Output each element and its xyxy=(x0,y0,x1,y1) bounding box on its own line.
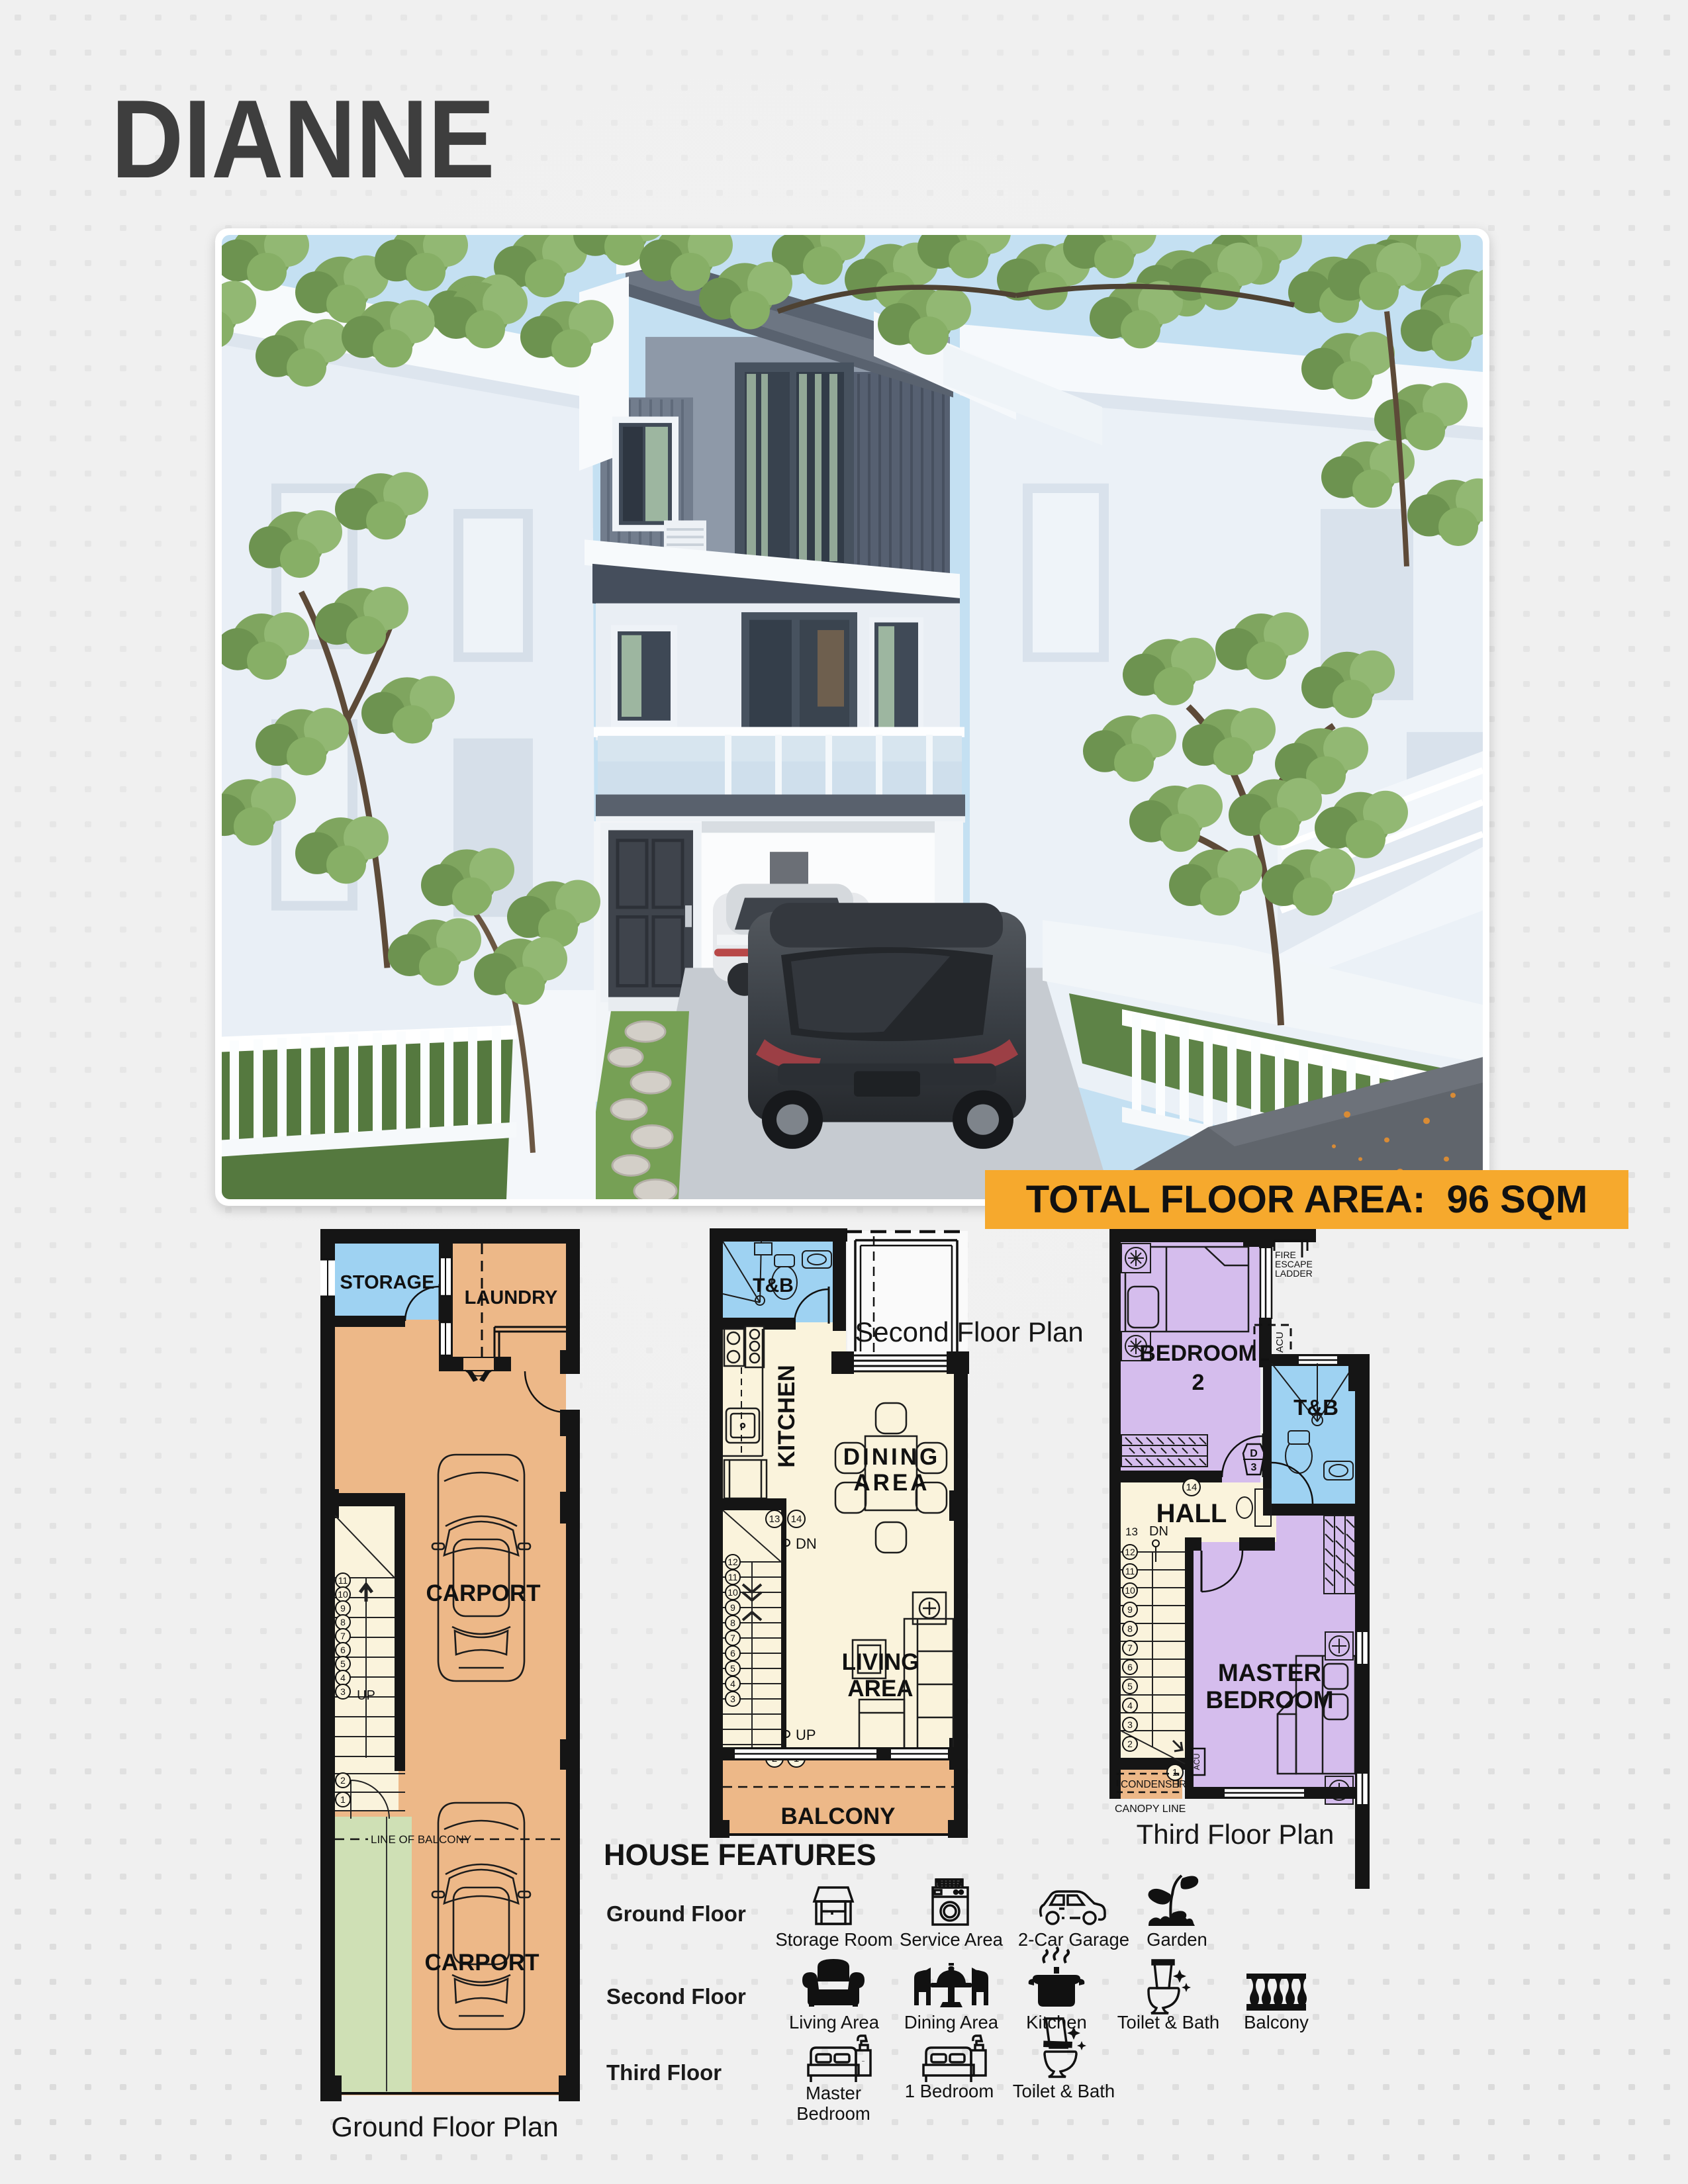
svg-text:14: 14 xyxy=(791,1514,802,1525)
svg-text:ACU: ACU xyxy=(1274,1332,1286,1353)
svg-text:13: 13 xyxy=(1125,1525,1138,1538)
svg-text:8: 8 xyxy=(340,1617,346,1627)
svg-text:BALCONY: BALCONY xyxy=(780,1803,895,1829)
svg-text:T&B: T&B xyxy=(1293,1395,1338,1420)
svg-text:9: 9 xyxy=(730,1602,735,1613)
svg-text:9: 9 xyxy=(340,1603,346,1614)
svg-text:3: 3 xyxy=(1127,1719,1133,1730)
svg-text:2: 2 xyxy=(340,1775,346,1786)
svg-text:BEDROOM: BEDROOM xyxy=(1139,1341,1257,1366)
svg-text:9: 9 xyxy=(1127,1604,1133,1615)
svg-text:LIVING: LIVING xyxy=(842,1649,919,1675)
svg-text:11: 11 xyxy=(728,1572,738,1582)
svg-text:6: 6 xyxy=(730,1648,735,1659)
svg-text:MASTER: MASTER xyxy=(1218,1659,1321,1686)
svg-text:UP: UP xyxy=(357,1688,375,1703)
svg-text:4: 4 xyxy=(1127,1700,1133,1711)
svg-text:Living Area: Living Area xyxy=(789,2012,880,2032)
svg-text:UP: UP xyxy=(796,1727,816,1743)
svg-text:Third Floor: Third Floor xyxy=(606,2060,722,2085)
svg-text:2: 2 xyxy=(1192,1370,1205,1395)
svg-text:D: D xyxy=(1250,1448,1258,1459)
svg-text:STORAGE: STORAGE xyxy=(340,1272,435,1293)
svg-text:7: 7 xyxy=(1127,1643,1133,1653)
svg-text:Second Floor: Second Floor xyxy=(606,1984,746,2009)
svg-text:1: 1 xyxy=(1172,1767,1178,1778)
svg-text:10: 10 xyxy=(727,1587,738,1598)
svg-text:2-Car Garage: 2-Car Garage xyxy=(1018,1929,1129,1950)
svg-text:3: 3 xyxy=(730,1694,735,1704)
svg-text:3: 3 xyxy=(340,1686,346,1697)
svg-text:8: 8 xyxy=(1127,1623,1133,1634)
svg-text:T&B: T&B xyxy=(753,1275,794,1297)
svg-text:DN: DN xyxy=(796,1535,817,1552)
svg-text:Ground Floor: Ground Floor xyxy=(606,1901,746,1926)
svg-text:10: 10 xyxy=(1125,1585,1135,1596)
svg-text:Storage Room: Storage Room xyxy=(775,1929,892,1950)
svg-text:CARPORT: CARPORT xyxy=(424,1950,539,1976)
svg-text:14: 14 xyxy=(1186,1482,1197,1493)
svg-text:5: 5 xyxy=(730,1663,735,1674)
svg-text:Second Floor Plan: Second Floor Plan xyxy=(855,1316,1084,1347)
svg-text:HOUSE FEATURES: HOUSE FEATURES xyxy=(604,1838,876,1872)
svg-text:11: 11 xyxy=(338,1575,348,1586)
svg-text:Garden: Garden xyxy=(1147,1929,1207,1950)
svg-text:6: 6 xyxy=(340,1645,346,1655)
svg-text:2: 2 xyxy=(1127,1739,1133,1749)
svg-text:Kitchen: Kitchen xyxy=(1026,2012,1087,2032)
svg-text:AREA: AREA xyxy=(853,1470,929,1496)
svg-text:10: 10 xyxy=(338,1589,348,1600)
svg-text:5: 5 xyxy=(340,1659,346,1669)
svg-text:Dining Area: Dining Area xyxy=(904,2012,999,2032)
svg-text:1: 1 xyxy=(340,1794,346,1805)
svg-text:12: 12 xyxy=(727,1557,738,1567)
svg-text:7: 7 xyxy=(730,1633,735,1643)
svg-text:13: 13 xyxy=(769,1514,780,1525)
svg-text:8: 8 xyxy=(730,1617,735,1628)
svg-text:LINE OF BALCONY: LINE OF BALCONY xyxy=(371,1833,471,1846)
svg-text:3: 3 xyxy=(1251,1462,1257,1473)
svg-text:CANOPY LINE: CANOPY LINE xyxy=(1115,1803,1186,1815)
svg-text:7: 7 xyxy=(340,1631,346,1641)
svg-text:ACU: ACU xyxy=(1192,1753,1201,1770)
svg-text:Master: Master xyxy=(806,2083,861,2103)
svg-text:Ground Floor Plan: Ground Floor Plan xyxy=(331,2111,558,2142)
svg-text:DINING: DINING xyxy=(843,1444,941,1470)
svg-text:LADDER: LADDER xyxy=(1275,1268,1313,1279)
svg-text:Service Area: Service Area xyxy=(900,1929,1004,1950)
svg-text:4: 4 xyxy=(730,1678,735,1689)
svg-text:4: 4 xyxy=(340,1672,346,1683)
svg-text:Third Floor Plan: Third Floor Plan xyxy=(1137,1819,1335,1850)
svg-text:KITCHEN: KITCHEN xyxy=(774,1365,800,1468)
svg-text:Toilet & Bath: Toilet & Bath xyxy=(1013,2081,1115,2101)
svg-text:Bedroom: Bedroom xyxy=(796,2103,870,2124)
svg-text:CONDENSER: CONDENSER xyxy=(1121,1779,1186,1790)
svg-text:CARPORT: CARPORT xyxy=(426,1580,540,1606)
svg-text:Balcony: Balcony xyxy=(1244,2012,1309,2032)
svg-text:12: 12 xyxy=(1125,1547,1135,1557)
svg-text:DN: DN xyxy=(1149,1524,1168,1539)
svg-text:LAUNDRY: LAUNDRY xyxy=(465,1287,558,1308)
svg-text:6: 6 xyxy=(1127,1662,1133,1672)
svg-text:5: 5 xyxy=(1127,1681,1133,1692)
svg-text:Toilet & Bath: Toilet & Bath xyxy=(1117,2012,1219,2032)
svg-text:1 Bedroom: 1 Bedroom xyxy=(905,2081,994,2101)
svg-text:11: 11 xyxy=(1125,1566,1135,1576)
svg-text:BEDROOM: BEDROOM xyxy=(1205,1686,1333,1713)
svg-text:AREA: AREA xyxy=(847,1676,913,1702)
